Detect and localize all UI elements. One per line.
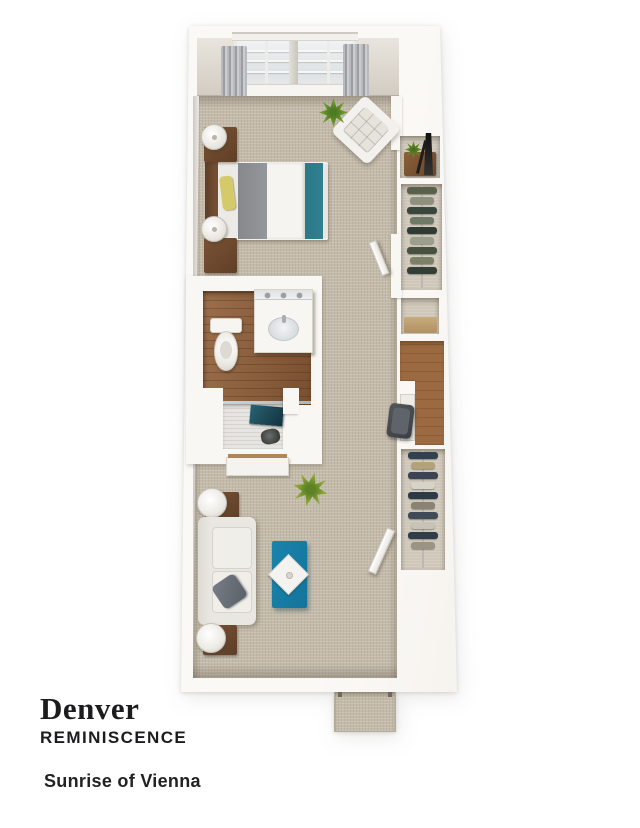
- window-mullion: [265, 41, 268, 86]
- hanging-garment: [411, 462, 435, 469]
- hanging-garment: [408, 512, 438, 519]
- faucet-knob: [297, 293, 302, 298]
- curtain-right: [343, 44, 369, 104]
- living-closet: [401, 449, 445, 570]
- program-label: REMINISCENCE: [40, 728, 201, 748]
- bed-gray-blanket: [238, 163, 267, 239]
- bed-duvet: [267, 163, 305, 239]
- door-hinge-mark: [388, 692, 392, 697]
- hanging-garment: [408, 532, 438, 539]
- hanging-garment: [407, 207, 437, 214]
- sofa: [198, 517, 256, 625]
- desk-chair: [386, 403, 415, 440]
- cup: [286, 572, 293, 579]
- hanging-garment: [411, 522, 435, 529]
- window-mullion: [327, 41, 330, 86]
- faucet-knob: [281, 293, 286, 298]
- round-side-table: [197, 488, 227, 518]
- sofa-cushion: [212, 527, 252, 569]
- hanging-garment: [411, 502, 435, 509]
- table-lamp: [201, 124, 227, 150]
- round-side-table: [196, 623, 226, 653]
- nightstand: [204, 238, 237, 273]
- hanging-garment: [408, 472, 438, 479]
- hanging-garment: [407, 187, 437, 194]
- caption: Denver REMINISCENCE Sunrise of Vienna: [40, 693, 201, 792]
- wall-stub: [283, 388, 299, 414]
- toilet: [214, 331, 238, 371]
- chair-cushion: [342, 106, 390, 154]
- bed-foot: [323, 164, 328, 238]
- storage-cabinet: [404, 317, 437, 333]
- table-lamp: [201, 216, 227, 242]
- bed-teal-runner: [305, 163, 323, 239]
- hanging-garment: [410, 257, 434, 264]
- door-hinge-mark: [338, 692, 342, 697]
- hanging-garment: [408, 492, 438, 499]
- window-header: [232, 32, 358, 41]
- vanity-sink: [254, 289, 313, 353]
- desk-counter: [400, 341, 444, 381]
- sink-basin: [268, 317, 299, 341]
- hanging-garment: [411, 542, 435, 549]
- shower-seat: [249, 405, 284, 427]
- hanging-garment: [407, 267, 437, 274]
- hanging-garment: [410, 237, 434, 244]
- window-center-post: [289, 41, 298, 89]
- community-name: Sunrise of Vienna: [44, 771, 201, 792]
- window-sill: [231, 84, 359, 96]
- hanging-garment: [407, 247, 437, 254]
- wall-stub: [201, 388, 223, 452]
- media-console: [226, 457, 289, 476]
- hanging-garment: [411, 482, 435, 489]
- hanging-garment: [410, 217, 434, 224]
- hanging-garment: [408, 452, 438, 459]
- unit-title: Denver: [40, 693, 201, 724]
- bedroom-closet: [401, 184, 442, 290]
- floor-plan-page: Denver REMINISCENCE Sunrise of Vienna: [0, 0, 640, 828]
- desk-counter-side: [415, 379, 444, 445]
- hanging-garment: [410, 197, 434, 204]
- entry-alcove: [334, 692, 396, 732]
- hanging-garment: [407, 227, 437, 234]
- potted-plant: [319, 98, 348, 127]
- faucet-knob: [265, 293, 270, 298]
